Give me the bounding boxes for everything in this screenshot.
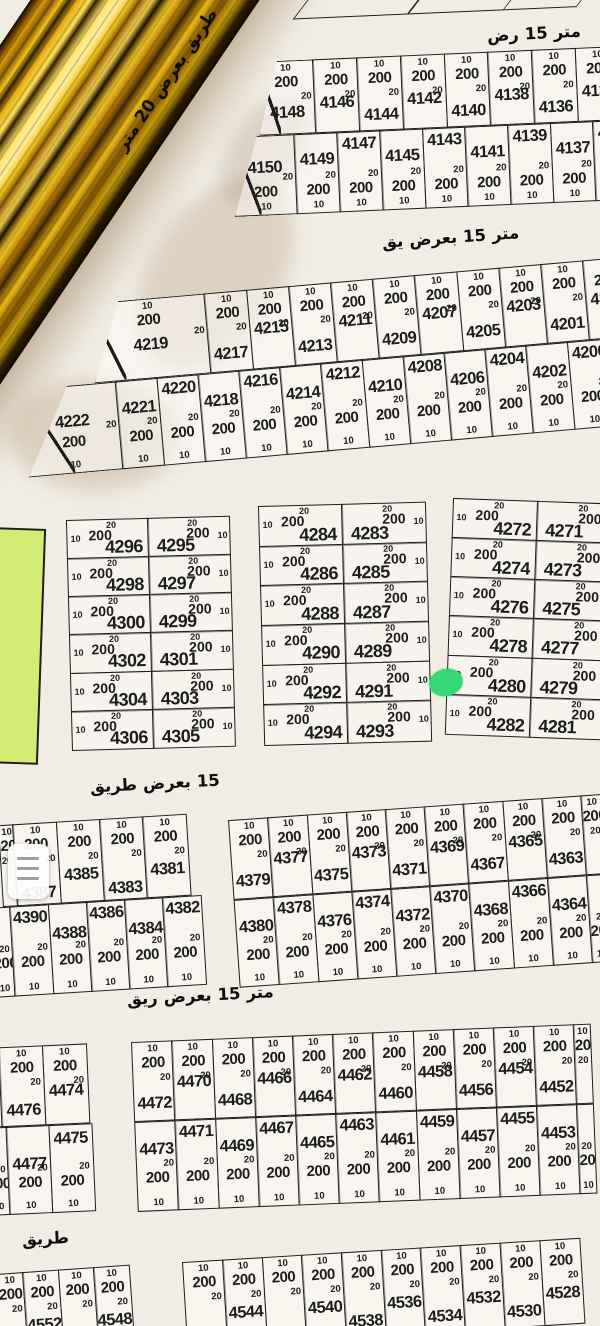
plot-dim: 10 — [500, 1182, 540, 1195]
plot-dim: 200 — [425, 175, 468, 194]
plot-dim: 200 — [253, 1049, 294, 1068]
plot-dim: 20 — [203, 1156, 214, 1167]
plot-number: 4464 — [295, 1087, 336, 1108]
plot-number: 4288 — [301, 603, 339, 625]
plot-cell-4382[interactable]: 43822020010 — [162, 895, 207, 987]
plot-dim: 20 — [174, 845, 185, 857]
plot-cell-4289[interactable]: 20200104289 — [344, 621, 430, 665]
plot-number: 4459 — [417, 1112, 458, 1133]
plot-number: 4211 — [334, 310, 377, 333]
plot-cell-4275[interactable]: 20200104275 — [533, 579, 600, 623]
plot-map-canvas: طريق بعرض 20 متر رض15متر يقبعرض15متر طري… — [0, 0, 600, 1326]
plot-dim: 10 — [514, 952, 554, 966]
plot-dim: 20 — [341, 929, 352, 941]
plot-dim: 20 — [568, 1269, 579, 1281]
plot-dim: 10 — [279, 968, 319, 982]
plot-dim: 200 — [426, 817, 466, 837]
plot-dim: 200 — [551, 923, 591, 943]
plot-number: 4302 — [108, 650, 146, 672]
plot-cell-4281[interactable]: 20200104281 — [529, 696, 600, 740]
plot-dim: 20 — [565, 1141, 576, 1152]
plot-dim: 10 — [71, 572, 81, 582]
plot-dim: 200 — [13, 952, 52, 971]
plot-dim: 10 — [267, 678, 277, 688]
plot-dim: 20 — [79, 1160, 90, 1171]
plot-number: 4296 — [105, 536, 143, 558]
plot-block-4450-4473: 1020020447210200204470102002044681020020… — [133, 1024, 598, 1212]
plot-number: 4470 — [174, 1072, 215, 1093]
plot-dim: 200 — [277, 942, 317, 962]
plot-dim: 10 — [540, 1180, 580, 1193]
plot-dim: 10 — [415, 555, 425, 565]
plot-number: 4544 — [226, 1302, 267, 1323]
plot-cell-4147[interactable]: 41472020010 — [336, 130, 384, 212]
plot-number: 4274 — [492, 558, 530, 580]
plot-dim: 20 — [488, 1274, 499, 1286]
plot-number: 4382 — [163, 898, 202, 919]
plot-dim: 200 — [374, 1044, 415, 1063]
plot-dim: 10 — [418, 674, 428, 684]
plot-dim: 200 — [541, 1251, 581, 1270]
plot-dim: 20 — [476, 83, 487, 94]
plot-number: 4463 — [336, 1115, 377, 1136]
plot-number: 4215 — [249, 317, 292, 340]
plot-dim: 200 — [408, 401, 450, 422]
plot-dim: 200 — [395, 934, 435, 954]
plot-number: 4454 — [495, 1059, 536, 1080]
plot-dim: 10 — [419, 714, 429, 724]
plot-number: 4205 — [462, 321, 505, 344]
plot-dim: 200 — [553, 169, 596, 188]
plot-dim: 200 — [263, 1268, 303, 1287]
plot-cell-4222[interactable]: 42222020010 — [21, 381, 124, 477]
plot-cell-4453[interactable]: 44532020010 — [536, 1104, 582, 1196]
plot-cell-4475[interactable]: 44752020010 — [48, 1123, 96, 1213]
plot-dim: 200 — [584, 270, 600, 291]
plot-number: 4466 — [254, 1069, 295, 1090]
plot-dim: 10 — [75, 724, 85, 734]
road-label-word: يق — [382, 231, 404, 251]
plot-number: 4476 — [2, 1100, 46, 1121]
plot-dim: 20 — [449, 1276, 460, 1288]
plot-cell-4474[interactable]: 10200204474 — [42, 1043, 90, 1125]
plot-number: 4139 — [508, 126, 551, 147]
plot-dim: 20 — [525, 1143, 536, 1154]
plot-cell-4459[interactable]: 44592020010 — [416, 1109, 462, 1201]
plot-cell-4476[interactable]: 10200204476 — [0, 1045, 47, 1127]
plot-dim: 200 — [184, 1273, 224, 1292]
plot-dim: 20 — [404, 1148, 415, 1159]
plot-dim: 10 — [220, 644, 230, 654]
plot-cell-4143[interactable]: 41432020010 — [422, 127, 470, 209]
plot-cell-4462[interactable]: 10200204462 — [332, 1032, 377, 1114]
plot-dim: 20 — [562, 1055, 573, 1066]
plot-dim: 200 — [166, 943, 205, 962]
plot-dim: 10 — [318, 965, 358, 979]
plot-number: 4305 — [162, 725, 200, 747]
plot-dim: 10 — [420, 1185, 460, 1198]
plot-dim: 10 — [222, 720, 232, 730]
plot-number: 4369 — [427, 837, 467, 859]
plot-dim: 20 — [330, 1283, 341, 1295]
plot-dim: 10 — [179, 1195, 219, 1208]
plot-cell-4471[interactable]: 44712020010 — [175, 1119, 221, 1211]
plot-dim: 10 — [383, 195, 426, 208]
plot-dim: 10 — [217, 530, 227, 540]
plot-dim: 20 — [88, 850, 99, 862]
plot-dim: 200 — [94, 1278, 130, 1297]
plot-dim: 10 — [72, 610, 82, 620]
plot-number: 4379 — [233, 870, 273, 892]
plot-cell-4296[interactable]: 20102004296 — [66, 518, 150, 560]
plot-number: 4144 — [359, 105, 403, 126]
plot-dim: 10 — [413, 516, 423, 526]
plot-dim: 200 — [382, 177, 425, 196]
plot-dim: 200 — [358, 69, 402, 88]
plot-dim: 20 — [578, 1055, 589, 1066]
plot-cell-4141[interactable]: 41412020010 — [464, 125, 512, 207]
plot-dim: 200 — [100, 829, 144, 849]
plot-dim: 10 — [299, 1190, 339, 1203]
plot-cell-partial[interactable]: 1020020 — [573, 1024, 594, 1105]
plot-dim: 20 — [413, 838, 424, 850]
plot-dim: 10 — [369, 430, 411, 445]
plot-cell-4145[interactable]: 41452020010 — [379, 129, 427, 211]
plot-number: 4301 — [160, 649, 198, 671]
plot-dim: 200 — [461, 1256, 501, 1275]
plot-cell-4295[interactable]: 20200104295 — [147, 516, 231, 558]
plot-number: 4276 — [490, 597, 528, 619]
plot-cell-4452[interactable]: 10200204452 — [533, 1024, 578, 1106]
plot-dim: 200 — [24, 1283, 60, 1302]
plot-block-4528-4546: 1020020102002045441020020102002045401020… — [184, 1238, 586, 1326]
plot-dim: 20 — [409, 1279, 420, 1291]
plot-cell-4134[interactable]: 10200204134 — [574, 46, 600, 122]
plot-cell-4472[interactable]: 10200204472 — [131, 1040, 176, 1122]
plot-cell-4137[interactable]: 41372020010 — [550, 121, 598, 203]
plot-number: 4294 — [304, 722, 342, 744]
plot-dim: 20 — [82, 1298, 93, 1310]
plot-dim: 200 — [133, 1053, 174, 1072]
plot-cell-4294[interactable]: 20102004294 — [263, 702, 349, 746]
plot-dim: 20 — [251, 1288, 262, 1300]
plot-dim: 10 — [246, 441, 288, 456]
plot-cell-4455[interactable]: 44552020010 — [496, 1106, 542, 1198]
plot-cell-partial[interactable]: 2020010 — [576, 1104, 598, 1195]
plot-number: 4385 — [59, 864, 103, 886]
plot-dim: 20 — [37, 1162, 48, 1173]
plot-dim: 200 — [387, 819, 427, 839]
plot-cell-4467[interactable]: 44672020010 — [255, 1115, 301, 1207]
plot-dim: 20 — [563, 79, 574, 90]
road-label-word: 15 — [196, 771, 220, 791]
plot-cell-4473[interactable]: 44732020010 — [134, 1120, 180, 1212]
plot-dim: 10 — [218, 568, 228, 578]
plot-cell-4477[interactable]: 44772020010 — [6, 1125, 54, 1215]
plot-number: 4458 — [415, 1062, 456, 1083]
plot-number: 4467 — [256, 1119, 297, 1140]
plot-cell-4136[interactable]: 10200204136 — [531, 48, 580, 124]
plot-cell-4142[interactable]: 10200204142 — [400, 54, 449, 130]
plot-number: 4295 — [157, 535, 195, 557]
plot-dim: 10 — [262, 520, 272, 530]
plot-cell-4385[interactable]: 10200204385 — [55, 819, 105, 904]
plot-number: 4365 — [505, 831, 545, 853]
plot-number: 4373 — [349, 842, 389, 864]
plot-number: 4298 — [106, 574, 144, 596]
plot-cell-4464[interactable]: 10200204464 — [292, 1034, 337, 1116]
plot-dim: 20 — [244, 1154, 255, 1165]
plot-cell-4271[interactable]: 20200104271 — [536, 501, 600, 545]
plot-cell-4291[interactable]: 20200104291 — [345, 660, 431, 704]
plot-cell-4457[interactable]: 44572020010 — [456, 1107, 502, 1199]
plot-cell-4299[interactable]: 20200104299 — [149, 592, 233, 634]
plot-cell-4276[interactable]: 20102004276 — [449, 576, 536, 620]
plot-number: 4282 — [486, 714, 524, 736]
plot-number: 4285 — [352, 562, 390, 584]
plot-dim: 200 — [504, 811, 544, 831]
plot-number: 4287 — [353, 601, 391, 623]
plot-cell-4301[interactable]: 20200104301 — [150, 630, 234, 672]
plot-number: 4306 — [110, 727, 148, 749]
plot-cell-4273[interactable]: 20200104273 — [534, 540, 600, 584]
plot-dim: 20 — [47, 1301, 58, 1313]
plot-number: 4138 — [489, 85, 533, 106]
plot-number: 4286 — [300, 563, 338, 585]
plot-dim: 20 — [131, 848, 142, 860]
plot-dim: 20 — [163, 1157, 174, 1168]
plot-dim: 20 — [581, 158, 592, 169]
plot-cell-4463[interactable]: 44632020010 — [335, 1112, 381, 1204]
plot-dim: 20 — [301, 90, 312, 101]
plot-cell-4470[interactable]: 10200204470 — [171, 1039, 216, 1121]
plot-number: 4280 — [488, 675, 526, 697]
plot-cell-4150[interactable]: 41502020010 — [231, 134, 298, 217]
plot-dim: 10 — [435, 957, 475, 971]
plot-number: 4136 — [534, 97, 578, 118]
plot-cell-4144[interactable]: 10200204144 — [356, 56, 405, 132]
plot-cell-4146[interactable]: 10200204146 — [312, 57, 361, 133]
plot-cell-4298[interactable]: 20102004298 — [67, 556, 151, 598]
plot-dim: 10 — [240, 971, 280, 985]
plot-cell-4148[interactable]: 10200204148 — [256, 59, 317, 135]
plot-cell-4283[interactable]: 20200104283 — [341, 502, 427, 546]
plot-dim: 200 — [449, 397, 491, 418]
plot-cell-4139[interactable]: 41392020010 — [507, 123, 555, 205]
plot-number: 4540 — [305, 1297, 346, 1318]
plot-cell-4305[interactable]: 20200104305 — [152, 706, 236, 748]
plot-dim: 200 — [297, 180, 340, 199]
plot-cell-4465[interactable]: 44652020010 — [295, 1114, 341, 1206]
plot-dim: 20 — [453, 164, 464, 175]
plot-dim: 200 — [243, 415, 285, 436]
plot-number: 4474 — [44, 1080, 88, 1101]
plot-cell-4140[interactable]: 10200204140 — [443, 52, 492, 128]
plot-dim: 10 — [456, 512, 466, 522]
plot-cell-4279[interactable]: 20200104279 — [530, 657, 600, 701]
plot-dim: 10 — [235, 200, 297, 214]
road-label-word: طريق — [22, 1228, 70, 1249]
plot-number: 4300 — [107, 612, 145, 634]
plot-dim: 200 — [224, 1270, 264, 1289]
plot-cell-4293[interactable]: 20200104293 — [346, 700, 432, 744]
plot-cell-4300[interactable]: 20102004300 — [68, 594, 152, 636]
plot-cell-4548[interactable]: 10200204548 — [93, 1265, 136, 1326]
plot-dim: 20 — [572, 292, 583, 304]
plot-dim: 10 — [10, 1199, 52, 1212]
plot-dim: 20 — [444, 1146, 455, 1157]
plot-cell-4303[interactable]: 20200104303 — [151, 668, 235, 710]
plot-cell-4272[interactable]: 20102004272 — [452, 498, 539, 542]
plot-dim: 20 — [321, 1065, 332, 1076]
plot-dim: 20 — [37, 941, 48, 953]
plot-dim: 200 — [512, 926, 552, 946]
plot-dim: 200 — [57, 832, 101, 852]
plot-dim: 10 — [52, 1197, 94, 1210]
plot-dim: 20 — [302, 932, 313, 944]
plot-dim: 20 — [401, 1062, 412, 1073]
plot-cell-4528[interactable]: 10200204528 — [539, 1238, 586, 1326]
plot-number: 4390 — [11, 907, 50, 928]
plot-number: 4471 — [176, 1122, 217, 1143]
plot-dim: 200 — [575, 1037, 592, 1055]
plot-cell-4306[interactable]: 20102004306 — [71, 708, 155, 750]
plot-dim: 200 — [258, 72, 315, 91]
plot-dim: 10 — [259, 1191, 299, 1204]
road-label-word: بعرض — [163, 985, 212, 1006]
plot-cell-4286[interactable]: 20102004286 — [259, 544, 345, 588]
menu-button[interactable] — [8, 844, 49, 899]
plot-dim: 20 — [570, 827, 581, 839]
plot-cell-4287[interactable]: 20200104287 — [343, 581, 429, 625]
road-label-word: طريق — [90, 775, 138, 796]
plot-dim: 200 — [173, 1052, 214, 1071]
plot-number: 4272 — [493, 518, 531, 540]
plot-cell-4288[interactable]: 20102004288 — [260, 583, 346, 627]
plot-dim: 200 — [178, 1167, 219, 1186]
plot-number: 4281 — [538, 716, 576, 738]
plot-cell-4461[interactable]: 44612020010 — [375, 1111, 421, 1203]
plot-cell-4454[interactable]: 10200204454 — [493, 1026, 538, 1108]
plot-cell-4282[interactable]: 20102004282 — [445, 693, 532, 737]
plot-dim: 200 — [202, 419, 244, 440]
plot-dim: 20 — [590, 825, 600, 837]
plot-number: 4148 — [259, 102, 316, 123]
plot-number: 4377 — [271, 848, 311, 870]
plot-dim: 200 — [235, 182, 298, 202]
plot-dim: 10 — [91, 976, 130, 989]
plot-cell-4304[interactable]: 20102004304 — [70, 670, 154, 712]
plot-dim: 10 — [553, 187, 596, 200]
plot-dim: 200 — [161, 422, 203, 443]
road-label-15m-a: يقبعرض15متر — [382, 223, 520, 252]
plot-cell-4458[interactable]: 10200204458 — [412, 1029, 457, 1111]
plot-block-4548-4552: 102002010200204552102002010200204548 — [0, 1265, 135, 1326]
road-label-word: بعرض — [409, 228, 458, 250]
plot-dim: 10 — [357, 963, 397, 977]
plot-number: 4208 — [404, 356, 446, 379]
plot-cell-4469[interactable]: 44692020010 — [215, 1117, 261, 1209]
plot-dim: 10 — [15, 980, 54, 993]
plot-dim: 10 — [574, 1026, 590, 1038]
plot-dim: 10 — [73, 648, 83, 658]
plot-number: 4140 — [446, 101, 490, 122]
plot-cell-4302[interactable]: 20102004302 — [69, 632, 153, 674]
plot-cell-4285[interactable]: 20200104285 — [342, 541, 428, 585]
plot-block-4271-4282: 2010200427220200104271201020042742020010… — [447, 500, 600, 740]
plot-dim: 20 — [282, 171, 293, 182]
plot-dim: 10 — [425, 193, 468, 206]
plot-dim: 20 — [325, 169, 336, 180]
plot-cell-4460[interactable]: 10200204460 — [372, 1031, 417, 1113]
plot-number: 4284 — [299, 524, 337, 546]
plot-dim: 10 — [219, 606, 229, 616]
plot-cell-4274[interactable]: 20102004274 — [450, 537, 537, 581]
plot-cell-4456[interactable]: 10200204456 — [453, 1027, 498, 1109]
plot-dim: 20 — [12, 1303, 23, 1315]
plot-dim: 200 — [419, 1157, 460, 1176]
plot-number: 4538 — [345, 1311, 386, 1326]
plot-row: 102002010200204552102002010200204548 — [0, 1265, 135, 1326]
plot-dim: 10 — [379, 1187, 419, 1200]
plot-cell-4277[interactable]: 20200104277 — [532, 618, 600, 662]
plot-dim: 10 — [122, 452, 164, 467]
plot-dim: 10 — [70, 534, 80, 544]
plot-dim: 20 — [536, 915, 547, 927]
green-zone — [0, 527, 46, 765]
road-label-word: متر — [553, 22, 581, 42]
plot-cell-4138[interactable]: 10200204138 — [487, 50, 536, 126]
plot-cell-4219[interactable]: 10200204219 — [88, 293, 213, 383]
plot-number: 4363 — [546, 848, 586, 870]
plot-number: 4289 — [354, 641, 392, 663]
plot-dim: 20 — [581, 1141, 592, 1152]
plot-cell-4466[interactable]: 10200204466 — [252, 1036, 297, 1118]
plot-number: 4204 — [486, 349, 528, 372]
plot-number: 4375 — [311, 865, 351, 887]
plot-dim: 10 — [416, 595, 426, 605]
plot-dim: 200 — [338, 1160, 379, 1179]
plot-cell-4290[interactable]: 20102004290 — [261, 623, 347, 667]
plot-cell-4468[interactable]: 10200204468 — [212, 1037, 257, 1119]
plot-dim: 10 — [511, 189, 554, 202]
plot-dim: 200 — [308, 825, 348, 845]
plot-number: 4292 — [303, 682, 341, 704]
plot-row: 447920200104477202001044752020010 — [0, 1123, 96, 1216]
plot-dim: 10 — [450, 708, 460, 718]
plot-number: 4455 — [497, 1109, 538, 1130]
plot-cell-4292[interactable]: 20102004292 — [262, 662, 348, 706]
plot-cell-4297[interactable]: 20200104297 — [148, 554, 232, 596]
plot-dim: 20 — [410, 166, 421, 177]
plot-cell-4383[interactable]: 10200204383 — [99, 816, 149, 901]
plot-cell-4381[interactable]: 10200204381 — [142, 814, 192, 899]
plot-dim: 200 — [325, 408, 367, 429]
plot-dim: 20 — [0, 944, 10, 956]
plot-number: 4149 — [295, 149, 338, 170]
plot-dim: 10 — [297, 198, 340, 211]
plot-cell-4278[interactable]: 20102004278 — [448, 615, 535, 659]
plot-dim: 20 — [320, 314, 331, 326]
road-label-bottom: طريق — [22, 1228, 70, 1249]
plot-number: 4203 — [502, 295, 545, 318]
plot-dim: 10 — [468, 191, 511, 204]
plot-dim: 200 — [213, 1050, 254, 1069]
plot-number: 4209 — [377, 328, 420, 351]
plot-cell-4284[interactable]: 20102004284 — [258, 504, 344, 548]
plot-cell-4149[interactable]: 41492020010 — [294, 132, 342, 214]
plot-dim: 200 — [128, 945, 167, 964]
